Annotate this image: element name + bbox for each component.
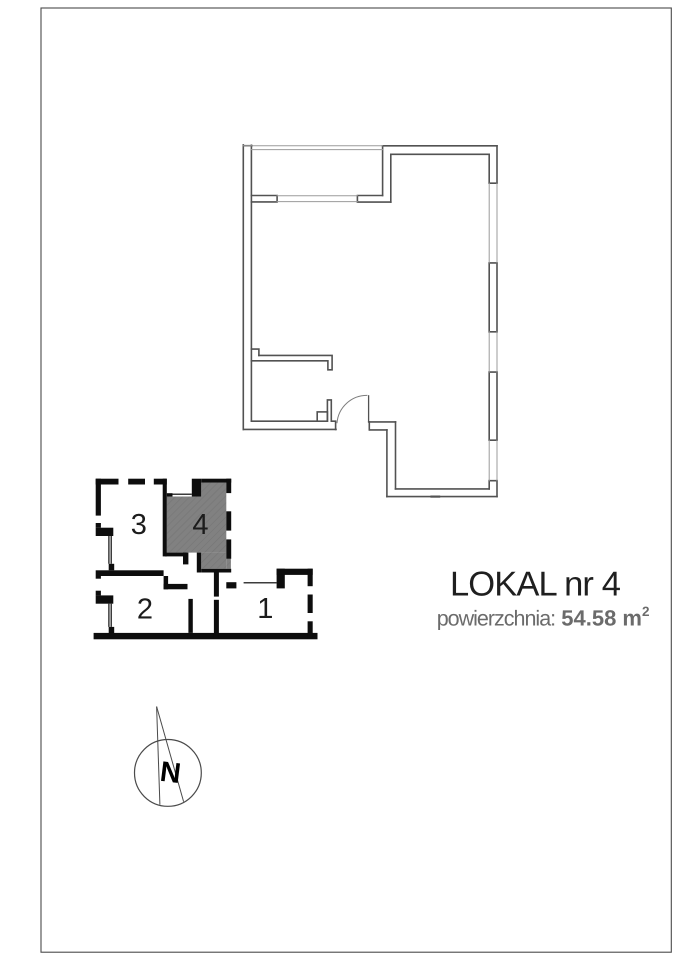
svg-text:1: 1 [257,593,273,625]
svg-text:3: 3 [131,509,147,541]
svg-text:2: 2 [137,594,153,626]
svg-text:N: N [158,756,182,790]
svg-text:4: 4 [192,509,208,541]
svg-text:LOKAL nr 4: LOKAL nr 4 [450,566,621,604]
svg-text:powierzchnia: 54.58 m2: powierzchnia: 54.58 m2 [437,604,650,631]
